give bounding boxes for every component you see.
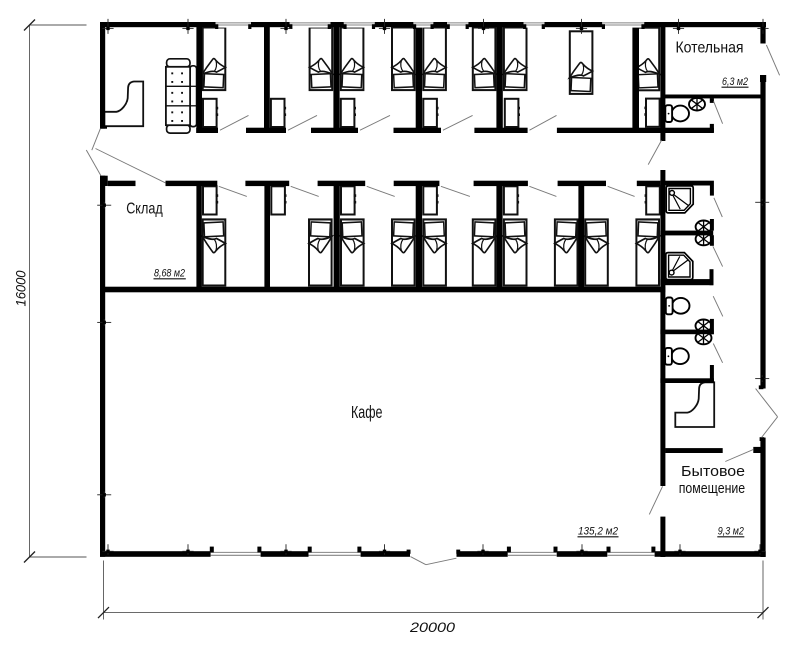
svg-text:9,3 м2: 9,3 м2 [718,526,744,538]
svg-text:Кафе: Кафе [351,402,383,422]
svg-text:Склад: Склад [126,200,163,217]
svg-text:135,2 м2: 135,2 м2 [578,526,618,538]
svg-text:6,3 м2: 6,3 м2 [722,76,748,88]
svg-text:20000: 20000 [409,620,456,635]
svg-text:Котельная: Котельная [676,40,744,57]
svg-text:8,68 м2: 8,68 м2 [154,268,185,280]
svg-text:Бытовое: Бытовое [681,464,745,480]
svg-text:помещение: помещение [679,481,746,497]
svg-text:16000: 16000 [14,270,29,306]
